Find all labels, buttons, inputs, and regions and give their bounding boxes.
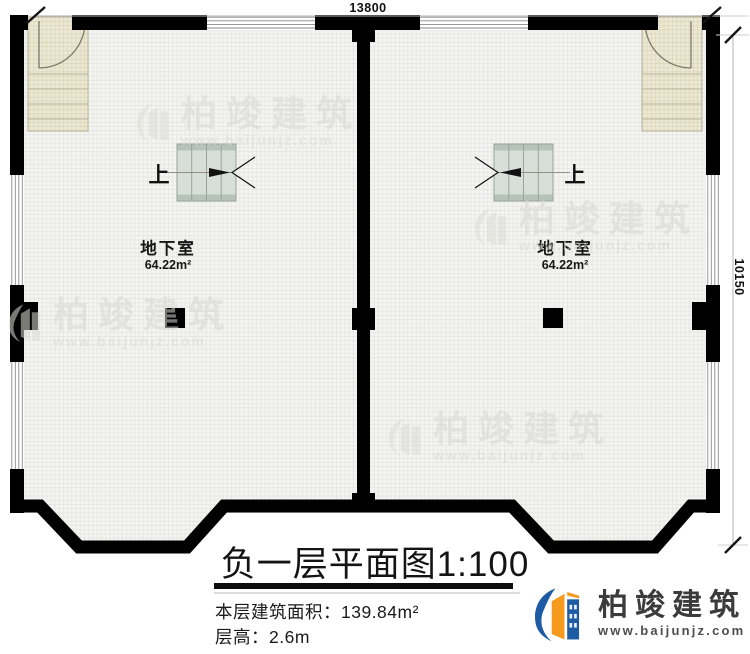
stair-up-label-left: 上 (147, 159, 171, 189)
floor-height-label: 层高：2.6m (215, 624, 310, 649)
room-area-right: 64.22m² (510, 258, 620, 272)
title-underline-thin (214, 592, 520, 594)
company-logo: 柏竣建筑 www.baijunjz.com (528, 580, 746, 646)
dimension-right-label: 10150 (732, 258, 746, 295)
company-logo-icon (528, 580, 590, 646)
room-name-right: 地下室 (510, 241, 620, 258)
corner-stair-left (28, 17, 88, 131)
floor-area-label: 本层建筑面积：139.84m² (215, 599, 419, 624)
room-label-right: 地下室 64.22m² (510, 241, 620, 272)
dimension-top-label: 13800 (338, 1, 398, 15)
room-name-left: 地下室 (113, 241, 223, 258)
room-label-left: 地下室 64.22m² (113, 241, 223, 272)
title-underline (214, 583, 513, 589)
corner-stair-right (642, 17, 702, 131)
company-logo-url: www.baijunjz.com (598, 623, 746, 638)
room-area-left: 64.22m² (113, 258, 223, 272)
company-logo-name: 柏竣建筑 (598, 589, 746, 623)
stair-up-label-right: 上 (563, 159, 587, 189)
floor-plan-page: 13800 10150 上 上 地下室 64.22m² 地下室 64.22m² … (0, 0, 750, 654)
